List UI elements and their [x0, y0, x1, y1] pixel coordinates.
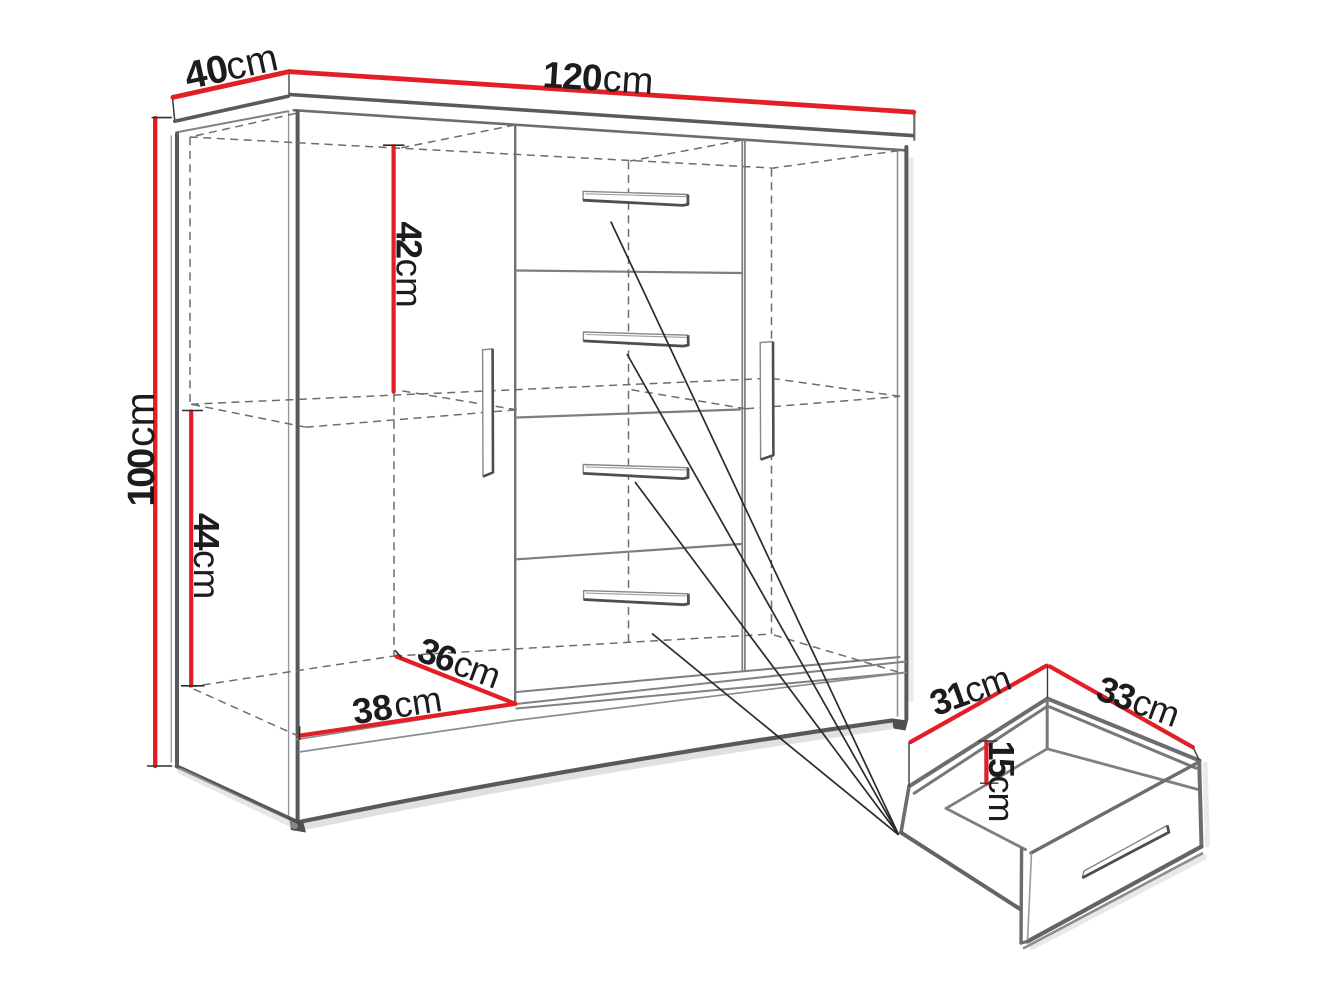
svg-text:100: 100 [121, 449, 163, 506]
svg-text:42: 42 [389, 222, 430, 259]
svg-text:cm: cm [117, 392, 163, 447]
svg-text:44: 44 [186, 513, 227, 551]
svg-text:cm: cm [601, 58, 654, 103]
svg-text:cm: cm [981, 776, 1022, 822]
svg-text:cm: cm [389, 259, 430, 308]
svg-text:15: 15 [981, 741, 1022, 779]
svg-text:cm: cm [391, 678, 445, 726]
svg-text:120: 120 [542, 54, 604, 99]
svg-text:cm: cm [186, 550, 227, 599]
svg-text:38: 38 [349, 686, 395, 733]
